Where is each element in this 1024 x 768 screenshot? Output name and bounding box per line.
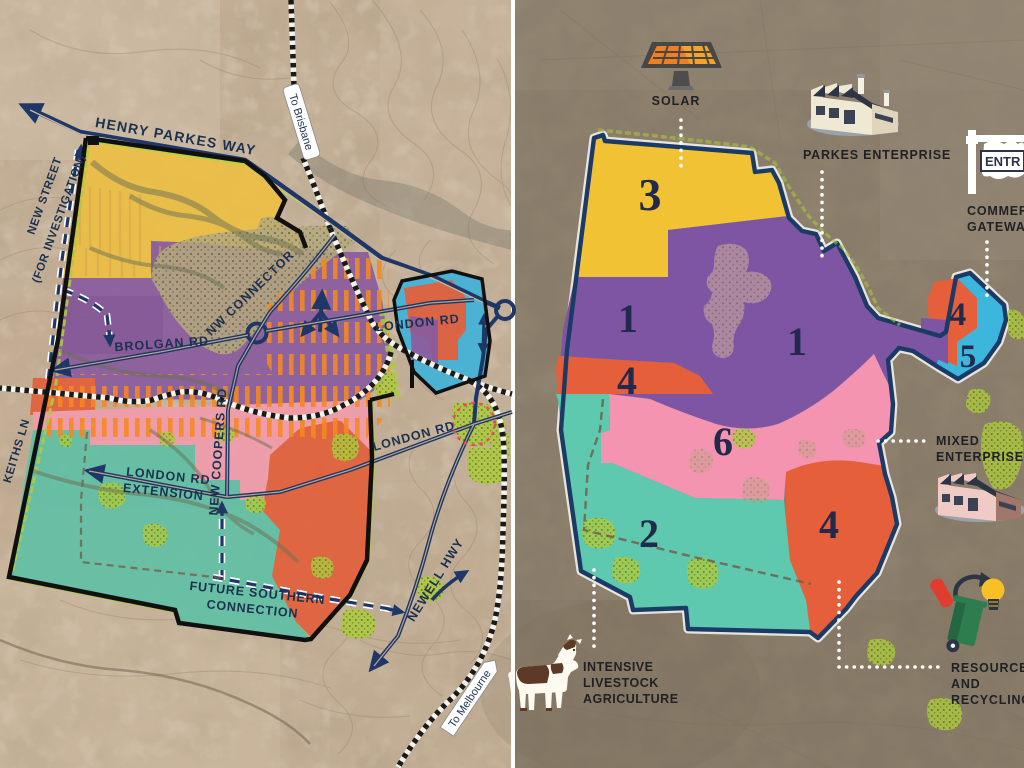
svg-text:6: 6	[713, 419, 733, 464]
svg-text:1: 1	[787, 319, 807, 364]
svg-text:1: 1	[618, 296, 638, 341]
svg-text:ENTERPRISE: ENTERPRISE	[936, 450, 1024, 464]
svg-text:RECYCLING: RECYCLING	[951, 693, 1024, 707]
svg-text:4: 4	[617, 358, 637, 403]
svg-text:4: 4	[950, 297, 967, 333]
svg-text:AND: AND	[951, 677, 980, 691]
svg-text:SOLAR: SOLAR	[652, 94, 701, 108]
svg-text:AGRICULTURE: AGRICULTURE	[583, 692, 679, 706]
svg-text:GATEWAY: GATEWAY	[967, 220, 1024, 234]
svg-text:5: 5	[960, 339, 977, 375]
svg-text:3: 3	[639, 169, 662, 220]
svg-text:PARKES ENTERPRISE: PARKES ENTERPRISE	[803, 148, 951, 162]
svg-text:RESOURCE: RESOURCE	[951, 661, 1024, 675]
svg-text:4: 4	[819, 502, 839, 547]
svg-text:MIXED: MIXED	[936, 434, 980, 448]
svg-text:2: 2	[639, 511, 659, 556]
svg-text:ENTR: ENTR	[985, 154, 1021, 169]
svg-text:COMMERCIAL: COMMERCIAL	[967, 204, 1024, 218]
svg-text:LIVESTOCK: LIVESTOCK	[583, 676, 659, 690]
svg-text:INTENSIVE: INTENSIVE	[583, 660, 654, 674]
